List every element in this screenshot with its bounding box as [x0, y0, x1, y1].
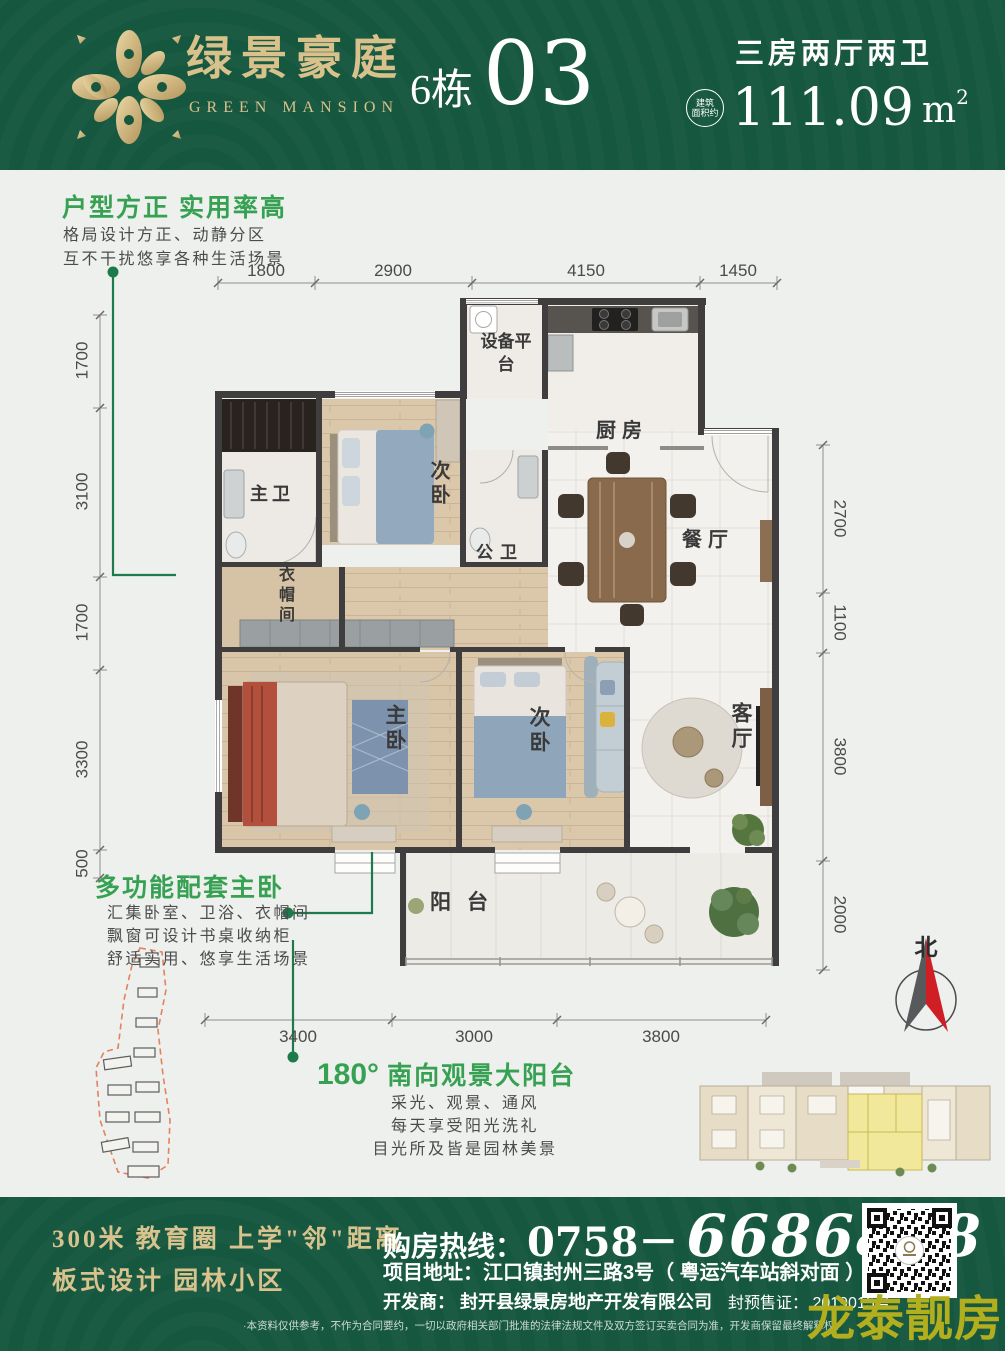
- room-label-master-bedroom: 主卧: [380, 704, 410, 754]
- feature-balcony-title: 南向观景大阳台: [387, 1064, 576, 1089]
- dim-right-4: 2000: [832, 873, 849, 957]
- watermark-text: 龙泰靓房: [807, 1295, 1003, 1343]
- dim-top-4: 1450: [696, 262, 780, 279]
- room-label-living: 客厅: [726, 702, 756, 752]
- site-sketch: [96, 948, 170, 1178]
- brand-logo-icon: [70, 28, 188, 146]
- project-address: 项目地址：江口镇封州三路3号（ 粤运汽车站斜对面 ）: [383, 1263, 865, 1283]
- room-label-dining: 餐厅: [682, 523, 734, 552]
- compass-north-label: 北: [902, 936, 950, 959]
- dim-left-3: 1700: [74, 581, 91, 665]
- unit-building: 6栋: [410, 52, 473, 132]
- room-label-bedroom-bottom: 次卧: [524, 706, 554, 756]
- dim-bottom-1: 3400: [256, 1028, 340, 1045]
- unit-spec: 三房两厅两卫: [714, 40, 954, 69]
- unit-number: 03: [483, 28, 595, 120]
- room-label-master-bath: 主卫: [250, 480, 294, 506]
- feature-layout-line2: 互不干扰悠享各种生活场景: [63, 252, 285, 268]
- feature-balcony-title-row: 180° 南向观景大阳台: [317, 1060, 576, 1090]
- dim-left-2: 3100: [74, 450, 91, 534]
- brand-name-en: GREEN MANSION: [189, 100, 399, 116]
- room-label-kitchen: 厨房: [596, 414, 648, 443]
- feature-balcony-line1: 采光、观景、通风: [330, 1096, 600, 1112]
- dim-right-2: 1100: [832, 581, 849, 665]
- dim-bottom-2: 3000: [432, 1028, 516, 1045]
- hotline-label: 购房热线：: [383, 1233, 523, 1261]
- unit-title: 6栋 03: [410, 28, 595, 132]
- room-label-bedroom-top: 次卧: [424, 460, 453, 508]
- dim-right-1: 2700: [832, 477, 849, 561]
- brand-name-cn: 绿景豪庭: [186, 36, 406, 82]
- developer-name: 开发商： 封开县绿景房地产开发有限公司: [383, 1293, 712, 1311]
- feature-layout-line1: 格局设计方正、动静分区: [63, 228, 267, 244]
- dim-left-4: 3300: [74, 718, 91, 802]
- dim-left-5: 500: [74, 822, 91, 906]
- feature-master-title: 多功能配套主卧: [95, 876, 284, 901]
- feature-balcony-degree: 180°: [317, 1060, 379, 1090]
- room-label-equipment: 设备平台: [477, 330, 535, 376]
- dim-right-3: 3800: [832, 715, 849, 799]
- area-value: 111.09: [732, 82, 914, 134]
- room-label-public-bath: 公卫: [476, 538, 524, 563]
- key-plan: [700, 1072, 990, 1177]
- feature-master-line2: 飘窗可设计书桌收纳柜: [107, 929, 292, 945]
- footer-slogan-2: 板式设计 园林小区: [52, 1269, 285, 1294]
- dim-bottom-3: 3800: [619, 1028, 703, 1045]
- footer-slogan-1: 300米 教育圈 上学"邻"距离: [52, 1227, 403, 1252]
- poster-page: 绿景豪庭 GREEN MANSION 6栋 03 三房两厅两卫 建筑 面积约 1…: [0, 0, 1005, 1351]
- dim-left-1: 1700: [74, 319, 91, 403]
- feature-layout-title: 户型方正 实用率高: [62, 196, 287, 221]
- area-row: 建筑 面积约 111.09 m2: [686, 82, 969, 134]
- qr-code: [862, 1203, 957, 1298]
- area-badge-line2: 面积约: [691, 108, 718, 118]
- dim-top-2: 2900: [351, 262, 435, 279]
- feature-master-line1: 汇集卧室、卫浴、衣帽间: [107, 906, 311, 922]
- area-sup: 2: [956, 85, 969, 109]
- room-label-cloakroom: 衣帽间: [272, 566, 296, 626]
- room-label-balcony: 阳台: [430, 886, 504, 916]
- feature-balcony-line3: 目光所及皆是园林美景: [330, 1142, 600, 1158]
- area-badge: 建筑 面积约: [686, 89, 724, 127]
- dim-top-3: 4150: [544, 262, 628, 279]
- feature-balcony-line2: 每天享受阳光洗礼: [330, 1119, 600, 1135]
- area-badge-line1: 建筑: [696, 98, 714, 108]
- feature-master-line3: 舒适实用、悠享生活场景: [107, 952, 311, 968]
- area-unit: m2: [922, 87, 969, 129]
- phone-prefix: 0758－: [527, 1223, 678, 1263]
- disclaimer-text: ·本资料仅供参考，不作为合同要约，一切以政府相关部门批准的法律法规文件及双方签订…: [243, 1321, 845, 1332]
